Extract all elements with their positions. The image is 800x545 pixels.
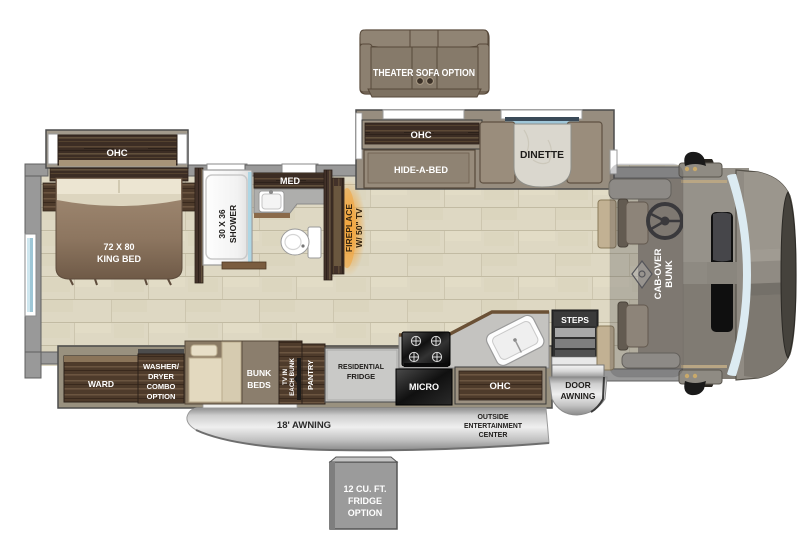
svg-text:OUTSIDE: OUTSIDE [477, 414, 508, 421]
svg-text:HIDE-A-BED: HIDE-A-BED [394, 165, 449, 175]
svg-text:FIREPLACE: FIREPLACE [344, 204, 354, 253]
svg-text:72 X 80: 72 X 80 [103, 242, 134, 252]
svg-text:OPTION: OPTION [348, 508, 383, 518]
svg-text:12 CU. FT.: 12 CU. FT. [343, 484, 386, 494]
svg-text:EACH BUNK: EACH BUNK [289, 358, 296, 396]
svg-text:FRIDGE: FRIDGE [348, 496, 382, 506]
svg-text:MED: MED [280, 176, 301, 186]
svg-text:THEATER SOFA OPTION: THEATER SOFA OPTION [373, 68, 475, 79]
svg-text:30 X 36: 30 X 36 [217, 209, 227, 239]
svg-text:BEDS: BEDS [247, 380, 271, 390]
svg-text:OHC: OHC [106, 148, 127, 159]
svg-text:DOOR: DOOR [565, 380, 591, 390]
svg-text:OHC: OHC [489, 381, 510, 392]
svg-text:COMBO: COMBO [147, 382, 176, 391]
svg-text:DINETTE: DINETTE [520, 150, 564, 161]
svg-text:18' AWNING: 18' AWNING [277, 420, 331, 431]
svg-text:WASHER/: WASHER/ [143, 362, 180, 371]
svg-text:PANTRY: PANTRY [306, 360, 315, 390]
svg-text:OHC: OHC [410, 130, 431, 141]
svg-text:BUNK: BUNK [247, 368, 272, 378]
svg-text:TV IN: TV IN [282, 369, 289, 386]
svg-text:OPTION: OPTION [147, 392, 176, 401]
svg-text:MICRO: MICRO [409, 382, 439, 392]
svg-text:AWNING: AWNING [561, 391, 596, 401]
svg-text:CAB-OVER: CAB-OVER [653, 249, 664, 300]
svg-text:STEPS: STEPS [561, 315, 589, 325]
svg-text:ENTERTAINMENT: ENTERTAINMENT [464, 423, 523, 430]
svg-text:BUNK: BUNK [664, 260, 675, 288]
svg-text:WARD: WARD [88, 379, 114, 389]
svg-text:KING BED: KING BED [97, 254, 142, 264]
svg-text:SHOWER: SHOWER [228, 205, 238, 243]
svg-text:CENTER: CENTER [479, 432, 508, 439]
svg-text:RESIDENTIAL: RESIDENTIAL [338, 362, 384, 371]
svg-text:W/ 50" TV: W/ 50" TV [354, 208, 364, 248]
svg-text:DRYER: DRYER [148, 372, 175, 381]
svg-text:FRIDGE: FRIDGE [347, 372, 375, 381]
